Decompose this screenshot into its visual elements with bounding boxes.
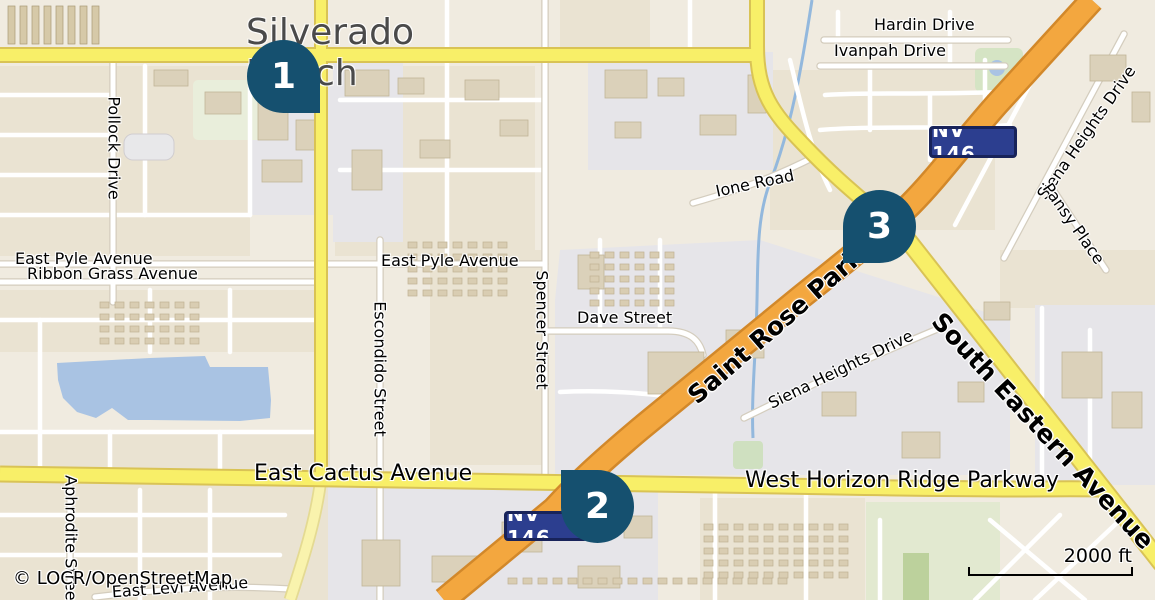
route-shield-nv146: NV 146 [929,126,1017,158]
map-view[interactable]: Silverado Ranch Pollock Drive East Pyle … [0,0,1155,600]
street-label-pollock-drive: Pollock Drive [105,96,122,199]
scale-tick-right [1131,567,1133,576]
park-small [733,441,763,469]
street-label-west-horizon-ridge-parkway: West Horizon Ridge Parkway [745,469,1059,492]
street-label-escondido-street: Escondido Street [371,301,388,436]
street-label-east-cactus-avenue: East Cactus Avenue [254,462,472,485]
street-label-ribbon-grass-avenue: Ribbon Grass Avenue [27,266,198,283]
map-pin-3[interactable]: 3 [843,190,916,263]
map-pin-2[interactable]: 2 [561,470,634,543]
map-attribution: © LOCR/OpenStreetMap [13,568,232,589]
street-label-dave-street: Dave Street [577,310,672,327]
street-label-spencer-street: Spencer Street [533,270,550,389]
field-inner [903,553,929,600]
street-label-hardin-drive: Hardin Drive [874,17,975,34]
scale-line [968,574,1131,576]
scale-bar: 2000 ft [966,545,1134,585]
map-pin-1[interactable]: 1 [247,40,320,113]
street-label-east-pyle-avenue-mid: East Pyle Avenue [381,253,519,270]
parking-lot [124,134,174,160]
street-label-ivanpah-drive: Ivanpah Drive [834,43,946,60]
scale-label: 2000 ft [1064,545,1132,567]
